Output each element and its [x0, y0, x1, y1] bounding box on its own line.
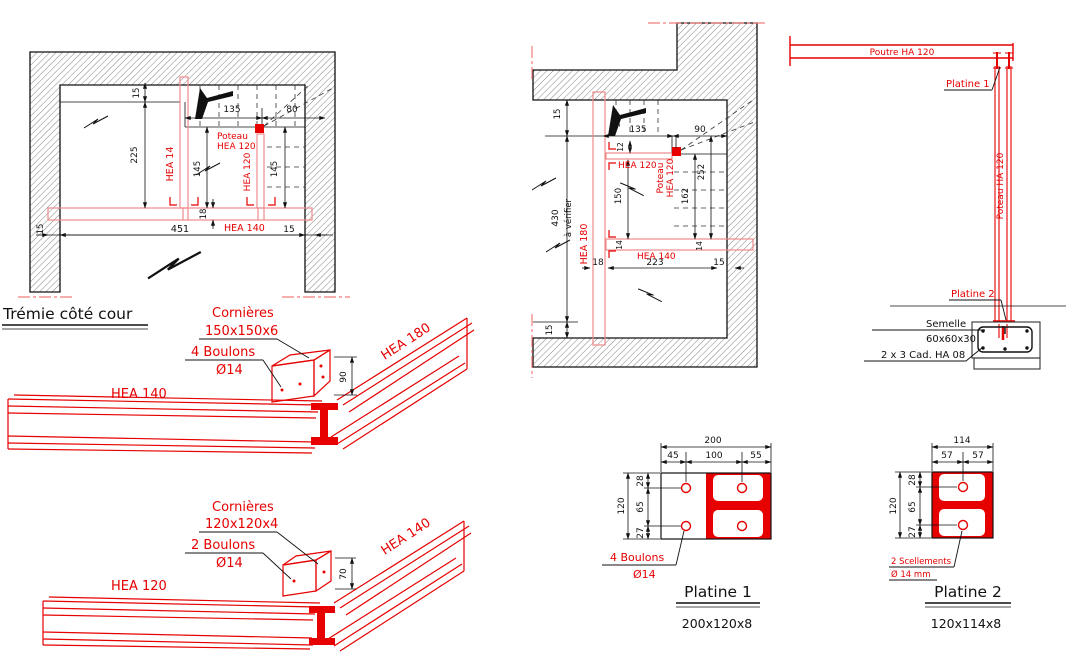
dim-150: 150: [614, 188, 624, 204]
joint-section: [311, 403, 338, 445]
dim-252: 252: [697, 164, 707, 180]
dim-57-left: 57: [941, 451, 952, 461]
beam-hea120-iso: [43, 597, 320, 649]
drawing-sheet: 15 225 80 135 80 HEA 14 Poteau HEA 120 H…: [0, 0, 1066, 652]
corniere-iso: [283, 551, 331, 596]
middle-plan: 15 90 135 90 12 HEA 120 Poteau HEA 120 1…: [532, 23, 768, 378]
dim-162: 162: [681, 188, 691, 204]
label-poutre: Poutre HA 120: [870, 48, 935, 58]
dim-14-right: 14: [695, 241, 704, 251]
beam-hea120: [606, 153, 672, 159]
poteau-marker: [255, 124, 264, 133]
dim-15-br: 15: [283, 225, 294, 235]
label-hea140: HEA 140: [111, 387, 167, 402]
dim-120: 120: [889, 497, 899, 514]
dim-225: 225: [130, 146, 140, 163]
label-hea140: HEA 140: [224, 223, 265, 234]
label-diametre: Ø 14 mm: [891, 569, 930, 580]
dim-135: 135: [629, 125, 646, 135]
dim-18: 18: [199, 209, 209, 220]
label-corniere-size: 150x150x6: [205, 324, 278, 339]
label-semelle-size: 60x60x30: [926, 334, 976, 345]
label-diametre: Ø14: [216, 556, 243, 571]
label-hea120: HEA 120: [243, 152, 253, 191]
label-boulons: 4 Boulons: [610, 551, 665, 564]
platine-2-detail: 114 57 57 120 28 65 27 2 Scellements Ø 1…: [889, 436, 1011, 631]
label-boulons: 2 Boulons: [191, 538, 255, 553]
plan-title: Trémie côté cour: [2, 305, 133, 323]
label-cornieres: Cornières: [212, 500, 274, 515]
dim-135: 135: [223, 105, 240, 115]
dim-90: 90: [694, 125, 706, 135]
dim-45: 45: [667, 451, 678, 461]
dim-100: 100: [705, 451, 722, 461]
label-semelle: Semelle: [926, 319, 966, 330]
elevation: Poutre HA 120 Platine 1 Poteau HA 120 Pl…: [790, 36, 1066, 369]
dim-18: 18: [592, 258, 604, 268]
dim-145-left: 145: [193, 161, 203, 177]
dim-114: 114: [953, 436, 970, 446]
dim-65: 65: [908, 501, 918, 512]
label-hea120: HEA 120: [111, 579, 167, 594]
label-platine-2: Platine 2: [951, 289, 995, 300]
dim-200: 200: [704, 436, 721, 446]
dim-120: 120: [617, 497, 627, 514]
dim-430: 430: [551, 209, 561, 226]
dim-12: 12: [616, 142, 625, 152]
dim-80: 80: [286, 105, 298, 115]
dim-15-bl: 15: [36, 224, 46, 235]
dim-15-bottom: 15: [545, 325, 555, 336]
dim-57-right: 57: [972, 451, 983, 461]
corniere-marks: [170, 197, 275, 205]
label-platine-1: Platine 1: [946, 79, 990, 90]
bolt-icon: [993, 52, 1013, 69]
label-poteau: Poteau HA 120: [996, 152, 1006, 219]
beam-hea140-iso: [8, 395, 322, 453]
dim-27: 27: [636, 527, 646, 538]
dim-28: 28: [636, 475, 646, 487]
poteau-marker: [672, 147, 681, 156]
dim-a-verifier: à vérifier: [563, 198, 574, 237]
dim-451: 451: [171, 224, 189, 235]
dim-15-right: 15: [713, 258, 724, 268]
iso-detail-2: Cornières 120x120x4 2 Boulons Ø14 70 HEA…: [43, 500, 471, 651]
dim-70: 70: [339, 568, 349, 580]
label-poteau-2: HEA 120: [666, 158, 676, 197]
beam-hea180: [593, 92, 605, 345]
platine-2-size: 120x114x8: [931, 616, 1002, 631]
label-hea140: HEA 140: [379, 516, 434, 559]
iso-detail-1: Cornières 150x150x6 4 Boulons Ø14 90 HEA…: [8, 306, 474, 453]
left-plan: 15 225 80 135 80 HEA 14 Poteau HEA 120 H…: [2, 52, 350, 329]
footing: [972, 322, 1040, 369]
label-boulons: 4 Boulons: [191, 345, 255, 360]
label-hea120: HEA 120: [618, 161, 657, 171]
label-cornieres: Cornières: [212, 306, 274, 321]
joint-section: [309, 606, 335, 645]
platine-1-size: 200x120x8: [682, 616, 753, 631]
platine-1-title: Platine 1: [684, 583, 752, 601]
dim-90-rot: 90: [613, 117, 623, 128]
dim-80-rot: 80: [199, 99, 209, 110]
dim-65: 65: [636, 501, 646, 512]
dim-15-top: 15: [553, 109, 563, 120]
label-poteau-2: HEA 120: [217, 142, 256, 152]
dim-90: 90: [339, 371, 349, 383]
label-corniere-size: 120x120x4: [205, 517, 278, 532]
dim-55: 55: [750, 451, 761, 461]
dim-14-left: 14: [615, 240, 624, 250]
dim-28: 28: [908, 474, 918, 486]
dim-15-top: 15: [132, 88, 142, 99]
left-plan-wall: [30, 52, 335, 292]
cad-drawing: 15 225 80 135 80 HEA 14 Poteau HEA 120 H…: [0, 0, 1066, 652]
label-poteau-1: Poteau: [656, 163, 666, 194]
label-diametre: Ø14: [216, 363, 243, 378]
beam-hea120: [257, 134, 264, 208]
platine-2-title: Platine 2: [934, 583, 1002, 601]
label-cadres: 2 x 3 Cad. HA 08: [881, 350, 965, 361]
platine-1-detail: 200 45 100 55 120 28 65 27 4 Boulons Ø14…: [602, 436, 771, 631]
label-diametre: Ø14: [633, 568, 656, 581]
dim-145-right: 145: [270, 161, 280, 177]
break-symbol: [84, 116, 220, 278]
break-symbol: [532, 176, 662, 309]
beam-hea140: [48, 208, 312, 220]
label-poteau-1: Poteau: [217, 132, 248, 142]
beam-hea14: [180, 77, 188, 208]
label-scellements: 2 Scellements: [891, 557, 952, 567]
dim-223: 223: [646, 258, 663, 268]
label-hea14: HEA 14: [165, 147, 176, 182]
dim-27: 27: [908, 526, 918, 537]
corniere-iso: [272, 350, 330, 402]
label-hea180: HEA 180: [579, 224, 590, 265]
